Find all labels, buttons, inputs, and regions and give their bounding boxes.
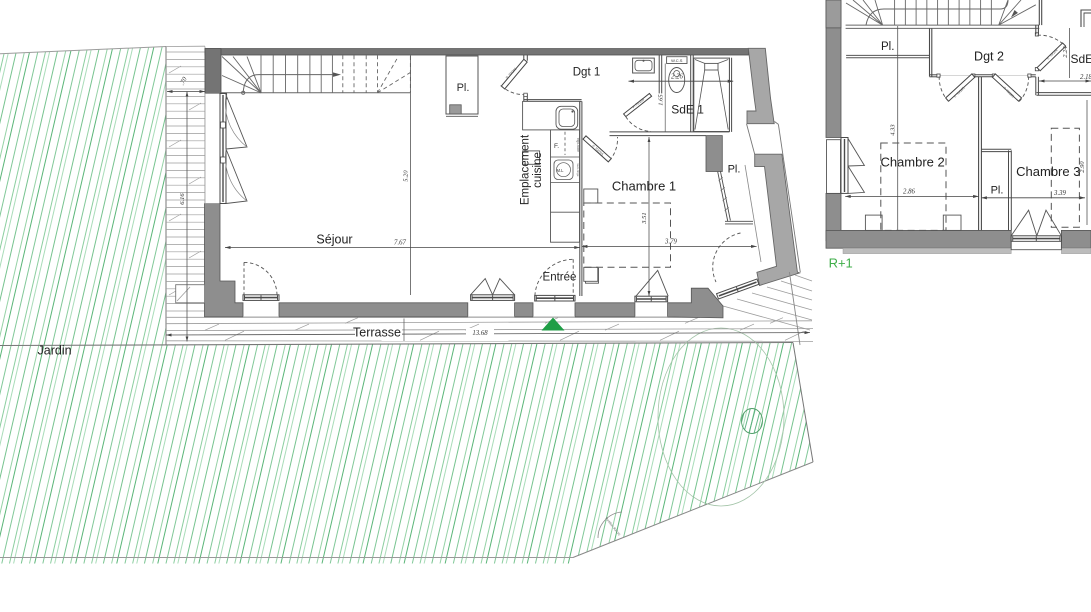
svg-text:Jardin: Jardin [38,344,72,358]
svg-text:3.39: 3.39 [1053,190,1066,197]
svg-text:2.86: 2.86 [903,189,915,196]
svg-text:2.18: 2.18 [1080,74,1091,81]
svg-text:Entrée: Entrée [543,272,577,284]
svg-text:R+1: R+1 [829,256,853,271]
svg-text:2.90: 2.90 [1079,161,1086,173]
svg-text:2.24: 2.24 [1062,46,1069,58]
svg-text:SdE 1: SdE 1 [671,103,704,117]
svg-text:Pl.: Pl. [991,185,1004,197]
svg-text:1.65: 1.65 [658,94,665,106]
svg-text:Dgt 1: Dgt 1 [573,67,601,79]
svg-text:F.: F. [554,143,559,150]
svg-text:Chambre 1: Chambre 1 [612,179,676,194]
svg-text:Chambre 2: Chambre 2 [880,155,944,170]
svg-text:3.79: 3.79 [664,239,677,246]
svg-text:frigo-table: frigo-table [576,138,580,152]
svg-text:Pl.: Pl. [881,41,894,53]
svg-text:6.16: 6.16 [179,193,186,205]
svg-text:Séjour: Séjour [316,233,352,247]
svg-text:Terrasse: Terrasse [353,326,401,340]
svg-text:SdE 2: SdE 2 [1071,52,1091,66]
svg-text:2.26: 2.26 [671,74,683,81]
svg-text:M.L: M.L [557,168,565,173]
svg-text:7.67: 7.67 [394,240,406,247]
svg-text:Emplacement: Emplacement [520,134,532,205]
svg-text:Pl.: Pl. [457,82,470,94]
svg-text:Dgt 2: Dgt 2 [974,50,1004,64]
svg-text:cuisine: cuisine [532,152,544,188]
svg-text:4.33: 4.33 [890,124,897,136]
svg-text:5.20: 5.20 [403,170,410,182]
svg-text:lave-linge: lave-linge [576,164,580,177]
svg-text:13.68: 13.68 [472,330,488,337]
svg-text:3.51: 3.51 [641,212,648,224]
svg-text:Pl.: Pl. [728,164,741,176]
svg-text:Chambre 3: Chambre 3 [1016,164,1080,179]
svg-text:W.C.S: W.C.S [671,58,683,63]
